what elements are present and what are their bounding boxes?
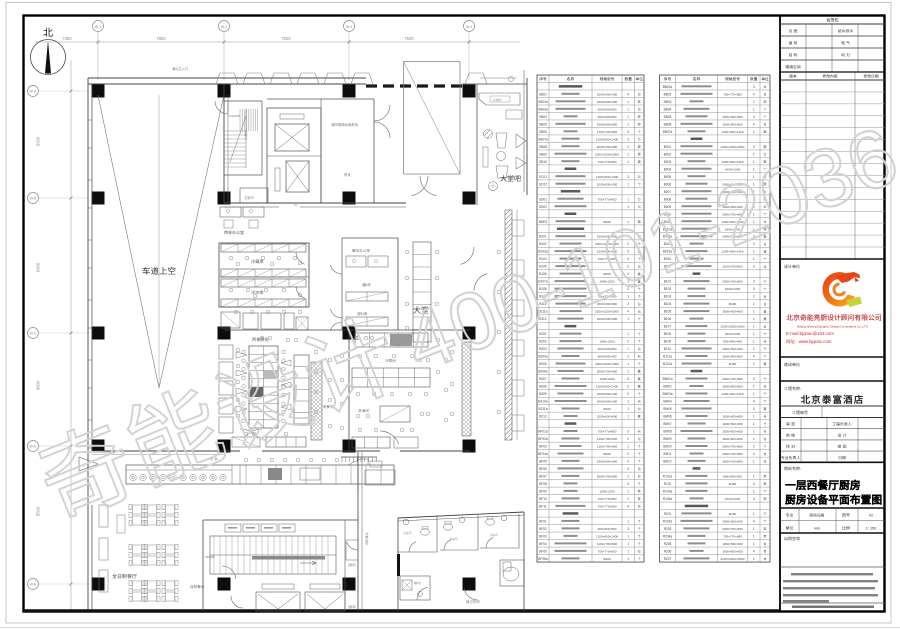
- svg-text:Φ400: Φ400: [729, 302, 737, 306]
- svg-text:池: 池: [418, 581, 421, 585]
- svg-text:BF10: BF10: [539, 497, 547, 501]
- svg-text:BF11: BF11: [539, 505, 547, 509]
- svg-text:B207: B207: [539, 377, 547, 381]
- svg-text:1: 1: [627, 497, 629, 501]
- svg-text:W-C: W-C: [30, 332, 37, 336]
- svg-text:B101: B101: [539, 235, 547, 239]
- svg-text:W-E: W-E: [30, 583, 37, 587]
- svg-text:货: 货: [348, 604, 351, 609]
- svg-text:1: 1: [627, 542, 629, 546]
- svg-text:1: 1: [627, 197, 629, 201]
- svg-text:2000×700×800: 2000×700×800: [722, 377, 743, 381]
- svg-text:4: 4: [627, 467, 629, 471]
- svg-text:B005: B005: [664, 175, 672, 179]
- svg-text:2000×700×800: 2000×700×800: [597, 145, 618, 149]
- svg-text:SB08: SB08: [539, 145, 547, 149]
- svg-text:4: 4: [627, 92, 629, 96]
- svg-text:1600×2200: 1600×2200: [725, 332, 741, 336]
- svg-text:BF02: BF02: [539, 527, 547, 531]
- svg-text:1: 1: [627, 100, 629, 104]
- svg-text:9500: 9500: [35, 136, 40, 146]
- svg-text:1: 1: [753, 460, 755, 464]
- svg-text:SB05: SB05: [539, 122, 547, 126]
- svg-text:B004: B004: [664, 167, 672, 171]
- svg-text:W-D: W-D: [30, 445, 37, 449]
- svg-text:E-mail:bjqnac@163.com: E-mail:bjqnac@163.com: [786, 331, 834, 336]
- svg-text:BF03: BF03: [539, 535, 547, 539]
- svg-text:BM05: BM05: [663, 407, 672, 411]
- svg-text:2000×700×800: 2000×700×800: [722, 445, 743, 449]
- svg-text:700×770×850: 700×770×850: [598, 430, 617, 434]
- svg-text:BF06: BF06: [539, 467, 547, 471]
- svg-text:1: 1: [753, 332, 755, 336]
- svg-text:1: 1: [753, 302, 755, 306]
- svg-text:1600×2200: 1600×2200: [599, 490, 615, 494]
- svg-text:1: 1: [627, 160, 629, 164]
- svg-text:1#: 1#: [244, 136, 248, 140]
- svg-text:SC01: SC01: [539, 175, 547, 179]
- svg-text:1: 1: [753, 325, 755, 329]
- svg-text:2#: 2#: [205, 555, 209, 559]
- svg-text:B206a: B206a: [538, 370, 547, 374]
- svg-text:R101a: R101a: [663, 475, 673, 479]
- svg-text:BM01a: BM01a: [662, 377, 672, 381]
- svg-text:R102: R102: [664, 482, 672, 486]
- svg-text:BF06a: BF06a: [538, 557, 548, 561]
- svg-text:B110: B110: [664, 347, 671, 351]
- svg-text:700×770×850: 700×770×850: [598, 497, 617, 501]
- svg-text:BF02a: BF02a: [538, 437, 548, 441]
- svg-text:BM03a: BM03a: [662, 392, 672, 396]
- svg-text:B006: B006: [664, 182, 672, 186]
- svg-text:R204a: R204a: [663, 535, 673, 539]
- svg-text:1: 1: [627, 205, 629, 209]
- svg-text:8500: 8500: [35, 506, 40, 516]
- svg-text:司: 司: [875, 314, 882, 322]
- svg-text:BF01a: BF01a: [538, 430, 548, 434]
- svg-text:3: 3: [627, 377, 629, 381]
- svg-text:1: 1: [753, 340, 755, 344]
- svg-text:SB01: SB01: [539, 92, 547, 96]
- svg-text:1: 1: [627, 115, 629, 119]
- svg-text:1: 1: [753, 430, 755, 434]
- svg-text:1: 1: [627, 317, 629, 321]
- svg-text:1: 1: [627, 347, 629, 351]
- svg-text:1: 1: [627, 107, 629, 111]
- svg-text:BM10: BM10: [663, 445, 672, 449]
- svg-text:3: 3: [753, 377, 755, 381]
- svg-text:GL: GL: [294, 203, 298, 207]
- svg-text:1: 1: [627, 550, 629, 554]
- svg-text:2000×700×800: 2000×700×800: [597, 475, 618, 479]
- svg-text:1: 1: [627, 332, 629, 336]
- svg-text:BF08: BF08: [539, 482, 547, 486]
- svg-text:SD01: SD01: [539, 197, 547, 201]
- svg-text:B210a: B210a: [538, 400, 547, 404]
- svg-text:SD02: SD02: [539, 205, 547, 209]
- svg-text:SB04: SB04: [539, 115, 547, 119]
- svg-text:Φ400: Φ400: [729, 512, 737, 516]
- svg-text:1200×600×1400: 1200×600×1400: [721, 392, 744, 396]
- svg-text:1: 1: [753, 475, 755, 479]
- svg-text:1500×600×800: 1500×600×800: [722, 122, 743, 126]
- svg-text:1500×600×800: 1500×600×800: [722, 437, 743, 441]
- svg-text:1000×500×300: 1000×500×300: [722, 542, 743, 546]
- svg-text:W-1: W-1: [95, 25, 101, 29]
- svg-text:R205: R205: [664, 542, 672, 546]
- svg-text:B105: B105: [664, 310, 672, 314]
- svg-text:3: 3: [753, 145, 755, 149]
- svg-text:7350: 7350: [62, 36, 72, 41]
- svg-text:2200×2200×2500: 2200×2200×2500: [721, 557, 745, 561]
- svg-text:BB05: BB05: [664, 115, 672, 119]
- svg-text:1200×600×1400: 1200×600×1400: [596, 385, 619, 389]
- svg-text:主入口: 主入口: [178, 66, 188, 71]
- svg-text:1600×2200: 1600×2200: [725, 497, 741, 501]
- svg-text:1: 1: [627, 415, 629, 419]
- svg-text:1: 1: [753, 392, 755, 396]
- svg-text:1: 1: [627, 535, 629, 539]
- svg-text:1: 1: [753, 152, 755, 156]
- svg-text:1: 1: [627, 122, 629, 126]
- svg-text:1: 1: [627, 475, 629, 479]
- svg-text:Φ400: Φ400: [729, 482, 737, 486]
- svg-text:B109: B109: [664, 340, 672, 344]
- svg-text:1200×600×1400: 1200×600×1400: [596, 175, 619, 179]
- svg-text:1: 1: [627, 557, 629, 561]
- svg-text:1: 1: [627, 400, 629, 404]
- svg-text:BB03: BB03: [664, 100, 672, 104]
- svg-text:2: 2: [753, 295, 755, 299]
- svg-text:1: 150: 1: 150: [866, 527, 877, 531]
- svg-text:BM11: BM11: [663, 452, 671, 456]
- svg-text:700×770×850: 700×770×850: [598, 160, 617, 164]
- svg-text:SC02: SC02: [539, 182, 547, 186]
- svg-text:1: 1: [627, 145, 629, 149]
- svg-text:1500×600×800: 1500×600×800: [597, 415, 618, 419]
- svg-text:BF04a: BF04a: [538, 452, 548, 456]
- svg-text:4: 4: [627, 460, 629, 464]
- svg-text:BF07: BF07: [539, 475, 547, 479]
- svg-text:4: 4: [627, 310, 629, 314]
- svg-text:1: 1: [753, 527, 755, 531]
- svg-text:1000×500×300: 1000×500×300: [597, 392, 618, 396]
- svg-text:1: 1: [627, 152, 629, 156]
- svg-text:2000×700×800: 2000×700×800: [722, 527, 743, 531]
- svg-text:mm: mm: [814, 527, 820, 531]
- svg-text:8400: 8400: [35, 262, 40, 272]
- svg-text:W-B: W-B: [30, 197, 37, 201]
- svg-text:1: 1: [627, 355, 629, 359]
- svg-text::: :: [800, 386, 801, 391]
- svg-text:4: 4: [753, 92, 755, 96]
- svg-text:1000×500×300: 1000×500×300: [722, 347, 743, 351]
- svg-text:1: 1: [753, 310, 755, 314]
- svg-text:B211a: B211a: [539, 407, 548, 411]
- svg-text:R203: R203: [664, 527, 672, 531]
- svg-text:1: 1: [627, 520, 629, 524]
- svg-text:1000×500×300: 1000×500×300: [597, 92, 618, 96]
- svg-text:2: 2: [753, 362, 755, 366]
- svg-text:1: 1: [627, 407, 629, 411]
- svg-text:4: 4: [753, 550, 755, 554]
- svg-text:3: 3: [753, 482, 755, 486]
- svg-text:3: 3: [627, 175, 629, 179]
- svg-text:3: 3: [627, 430, 629, 434]
- svg-text:BM09: BM09: [663, 437, 672, 441]
- svg-text:Beijing Qineng Dangchu Design: Beijing Qineng Dangchu Design Consultant…: [797, 325, 869, 329]
- svg-text:2000×700×800: 2000×700×800: [722, 452, 743, 456]
- svg-text:800×600×400: 800×600×400: [723, 475, 742, 479]
- svg-text:BB02: BB02: [664, 92, 672, 96]
- svg-text:B001: B001: [664, 145, 672, 149]
- svg-text:1: 1: [753, 437, 755, 441]
- svg-text:02: 02: [869, 514, 873, 518]
- svg-text:2200×2200×2500: 2200×2200×2500: [595, 152, 619, 156]
- svg-text:B103: B103: [664, 295, 672, 299]
- svg-text:700×770×850: 700×770×850: [598, 505, 617, 509]
- svg-text:1: 1: [627, 490, 629, 494]
- svg-text:2200×2200×2500: 2200×2200×2500: [595, 362, 619, 366]
- svg-text:www.bjqnac.com: www.bjqnac.com: [799, 339, 832, 344]
- svg-text:1: 1: [753, 130, 755, 134]
- svg-text:4: 4: [627, 505, 629, 509]
- svg-text:400-101-2036: 400-101-2036: [392, 110, 900, 390]
- svg-text:700×770×850: 700×770×850: [723, 535, 742, 539]
- svg-text:700×770×850: 700×770×850: [598, 197, 617, 201]
- svg-text:7820: 7820: [281, 36, 291, 41]
- svg-text:1: 1: [753, 107, 755, 111]
- svg-text:4: 4: [753, 452, 755, 456]
- svg-text:2: 2: [627, 452, 629, 456]
- svg-text:6600: 6600: [35, 380, 40, 390]
- svg-text:7500: 7500: [404, 36, 414, 41]
- svg-text:2: 2: [627, 385, 629, 389]
- svg-text:1: 1: [753, 557, 755, 561]
- svg-text:B104: B104: [664, 302, 672, 306]
- svg-text:B208: B208: [539, 385, 547, 389]
- svg-text:1500×600×800: 1500×600×800: [722, 310, 743, 314]
- svg-text:1100×700×800: 1100×700×800: [597, 542, 618, 546]
- svg-text:1: 1: [627, 445, 629, 449]
- svg-text:BM01: BM01: [539, 220, 548, 224]
- svg-text:SB02a: SB02a: [538, 100, 548, 104]
- svg-text:3: 3: [753, 497, 755, 501]
- svg-text:BF01: BF01: [539, 520, 547, 524]
- svg-text:1500×600×800: 1500×600×800: [722, 550, 743, 554]
- svg-text:BB07a: BB07a: [663, 130, 673, 134]
- svg-text:R103a: R103a: [663, 490, 673, 494]
- svg-text:BM06: BM06: [663, 415, 672, 419]
- svg-text:SB06: SB06: [539, 130, 547, 134]
- svg-text:1000×500×300: 1000×500×300: [722, 422, 743, 426]
- svg-text:1000×500×300: 1000×500×300: [597, 182, 618, 186]
- svg-text:B205: B205: [539, 362, 547, 366]
- svg-text:1000×500×300: 1000×500×300: [722, 520, 743, 524]
- svg-text:BM12: BM12: [663, 460, 672, 464]
- svg-text:Φ400: Φ400: [603, 452, 611, 456]
- svg-text:B209: B209: [539, 392, 547, 396]
- svg-text:BM08: BM08: [663, 430, 672, 434]
- svg-text:SB10: SB10: [539, 160, 547, 164]
- svg-text:1: 1: [753, 542, 755, 546]
- svg-text:2200×2200×2500: 2200×2200×2500: [721, 325, 745, 329]
- svg-text:4: 4: [753, 122, 755, 126]
- svg-text:B212: B212: [539, 415, 547, 419]
- svg-text:Φ400: Φ400: [603, 557, 611, 561]
- svg-text:R207: R207: [664, 557, 672, 561]
- svg-text:BF03: BF03: [539, 445, 547, 449]
- svg-text:B108: B108: [664, 332, 672, 336]
- svg-text:1500×600×800: 1500×600×800: [722, 415, 743, 419]
- svg-text:1100×700×800: 1100×700×800: [597, 445, 618, 449]
- svg-text:3: 3: [627, 130, 629, 134]
- svg-text:1500×600×800: 1500×600×800: [722, 355, 743, 359]
- svg-text:SB09: SB09: [539, 152, 547, 156]
- svg-text:B003: B003: [664, 160, 672, 164]
- svg-text:3: 3: [753, 265, 755, 269]
- svg-text:W-2: W-2: [221, 25, 227, 29]
- svg-text:1: 1: [753, 490, 755, 494]
- svg-text:FHZ155: FHZ155: [229, 114, 240, 118]
- svg-text:7800: 7800: [156, 36, 166, 41]
- svg-text:B204a: B204a: [538, 355, 547, 359]
- svg-text:BB01a: BB01a: [663, 85, 673, 89]
- svg-text:3: 3: [753, 85, 755, 89]
- svg-text:3: 3: [627, 527, 629, 531]
- svg-text:1: 1: [753, 317, 755, 321]
- svg-text:2: 2: [753, 445, 755, 449]
- svg-text:1000×500×300: 1000×500×300: [597, 400, 618, 404]
- svg-text:1200×600×1400: 1200×600×1400: [721, 160, 744, 164]
- svg-text:1600×2200: 1600×2200: [599, 377, 615, 381]
- svg-text:BF09: BF09: [539, 490, 547, 494]
- svg-text:1: 1: [753, 385, 755, 389]
- svg-text:1500×600×800: 1500×600×800: [722, 115, 743, 119]
- svg-text:BB04: BB04: [664, 107, 672, 111]
- svg-text:1: 1: [753, 512, 755, 516]
- svg-text:W-A: W-A: [30, 90, 37, 94]
- svg-text:800×600×400: 800×600×400: [598, 355, 617, 359]
- svg-text::: :: [800, 466, 801, 471]
- svg-text:Φ400: Φ400: [603, 407, 611, 411]
- svg-text:1: 1: [627, 182, 629, 186]
- svg-text:R104a: R104a: [663, 497, 673, 501]
- svg-text:BB06: BB06: [664, 122, 672, 126]
- svg-text:3: 3: [753, 287, 755, 291]
- svg-text:1500×600×800: 1500×600×800: [597, 460, 618, 464]
- svg-text:W-3: W-3: [346, 25, 352, 29]
- svg-text:BM04: BM04: [663, 400, 672, 404]
- svg-text:1: 1: [753, 347, 755, 351]
- svg-text:1800×760×800: 1800×760×800: [722, 460, 743, 464]
- svg-text:1: 1: [753, 535, 755, 539]
- svg-text:700×770×850: 700×770×850: [723, 92, 742, 96]
- svg-text:1600×2200: 1600×2200: [599, 340, 615, 344]
- svg-text:1: 1: [753, 257, 755, 261]
- svg-text:B002: B002: [664, 152, 672, 156]
- svg-text:2000×700×800: 2000×700×800: [722, 280, 743, 284]
- svg-text:700×770×850: 700×770×850: [598, 550, 617, 554]
- svg-text:Φ400: Φ400: [729, 362, 737, 366]
- svg-text:1: 1: [627, 370, 629, 374]
- svg-text:BM02: BM02: [663, 385, 672, 389]
- svg-text:SB07a: SB07a: [538, 137, 548, 141]
- svg-text:600×600×850: 600×600×850: [598, 347, 617, 351]
- svg-text:W-4: W-4: [466, 25, 472, 29]
- svg-text:3: 3: [627, 482, 629, 486]
- svg-text:B203: B203: [539, 347, 547, 351]
- svg-text:BM07: BM07: [663, 422, 672, 426]
- svg-text:4: 4: [753, 520, 755, 524]
- svg-text:B106: B106: [664, 317, 672, 321]
- svg-text:1200×600×1400: 1200×600×1400: [721, 130, 744, 134]
- svg-text:B111a: B111a: [663, 355, 672, 359]
- svg-text:1600×2200: 1600×2200: [725, 287, 741, 291]
- svg-text:BF05: BF05: [539, 550, 547, 554]
- svg-text:3: 3: [627, 137, 629, 141]
- svg-text:1: 1: [627, 362, 629, 366]
- svg-text:SB03a: SB03a: [538, 107, 548, 111]
- svg-text:1: 1: [753, 415, 755, 419]
- svg-text:4: 4: [753, 115, 755, 119]
- svg-text:600×600×850: 600×600×850: [598, 115, 617, 119]
- svg-text:1: 1: [753, 422, 755, 426]
- svg-text:1200×600×1400: 1200×600×1400: [596, 535, 619, 539]
- svg-text:1500×600×800: 1500×600×800: [722, 430, 743, 434]
- svg-text:4: 4: [753, 355, 755, 359]
- svg-text:R202a: R202a: [663, 520, 673, 524]
- svg-text:3: 3: [753, 407, 755, 411]
- svg-text:BF04: BF04: [539, 542, 547, 546]
- svg-text:4: 4: [753, 400, 755, 404]
- svg-text:BF05: BF05: [539, 460, 547, 464]
- svg-text:1100×700×800: 1100×700×800: [597, 437, 618, 441]
- svg-text:2: 2: [753, 100, 755, 104]
- svg-text:2: 2: [627, 437, 629, 441]
- svg-text:R201: R201: [664, 512, 672, 516]
- svg-text:1500×600×800: 1500×600×800: [722, 385, 743, 389]
- svg-text:货: 货: [348, 562, 351, 567]
- svg-text:B107: B107: [664, 325, 672, 329]
- svg-text::: :: [795, 339, 796, 344]
- svg-text:800×600×400: 800×600×400: [723, 340, 742, 344]
- svg-text:1100×700×800: 1100×700×800: [597, 130, 618, 134]
- svg-text:1200×600×1400: 1200×600×1400: [596, 137, 619, 141]
- svg-text:1500×600×800: 1500×600×800: [597, 100, 618, 104]
- svg-text:1500×600×800: 1500×600×800: [597, 122, 618, 126]
- svg-text:2200×2200×2500: 2200×2200×2500: [721, 145, 745, 149]
- svg-text:2000×700×800: 2000×700×800: [597, 370, 618, 374]
- svg-text:2: 2: [627, 340, 629, 344]
- svg-text:B112a: B112a: [663, 362, 672, 366]
- svg-text:R206: R206: [664, 550, 672, 554]
- svg-text:600×600×850: 600×600×850: [598, 527, 617, 531]
- svg-text:2: 2: [627, 392, 629, 396]
- svg-text:3: 3: [753, 280, 755, 284]
- svg-text:600×600×850: 600×600×850: [598, 107, 617, 111]
